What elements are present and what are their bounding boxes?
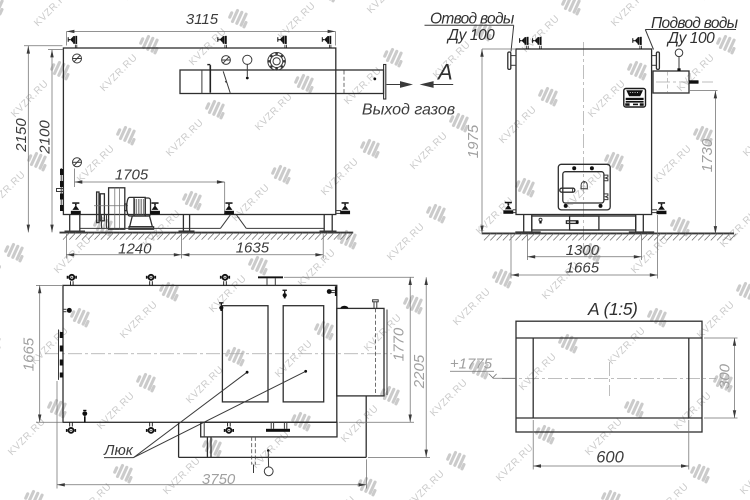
svg-text:А (1:5): А (1:5) [587, 299, 637, 319]
svg-text:1770: 1770 [391, 327, 408, 361]
svg-text:3750: 3750 [202, 471, 236, 488]
svg-text:600: 600 [596, 449, 624, 467]
svg-text:1300: 1300 [566, 242, 600, 259]
svg-text:1240: 1240 [118, 241, 152, 258]
svg-text:3115: 3115 [186, 11, 219, 28]
svg-text:1730: 1730 [699, 138, 716, 172]
svg-text:1975: 1975 [465, 124, 482, 158]
svg-text:А: А [436, 60, 452, 85]
svg-text:+1775: +1775 [450, 356, 493, 373]
svg-text:2150: 2150 [13, 118, 30, 153]
svg-text:Ду 100: Ду 100 [666, 30, 715, 47]
svg-text:Люк: Люк [103, 442, 134, 459]
svg-text:2205: 2205 [411, 354, 428, 389]
svg-text:1705: 1705 [115, 167, 149, 184]
svg-text:1665: 1665 [566, 260, 600, 277]
svg-text:Ду 100: Ду 100 [446, 27, 495, 44]
svg-text:2100: 2100 [37, 120, 54, 155]
svg-text:1635: 1635 [236, 240, 270, 257]
svg-text:1665: 1665 [21, 337, 38, 371]
svg-text:Выход газов: Выход газов [362, 102, 455, 119]
svg-text:300: 300 [717, 363, 734, 389]
